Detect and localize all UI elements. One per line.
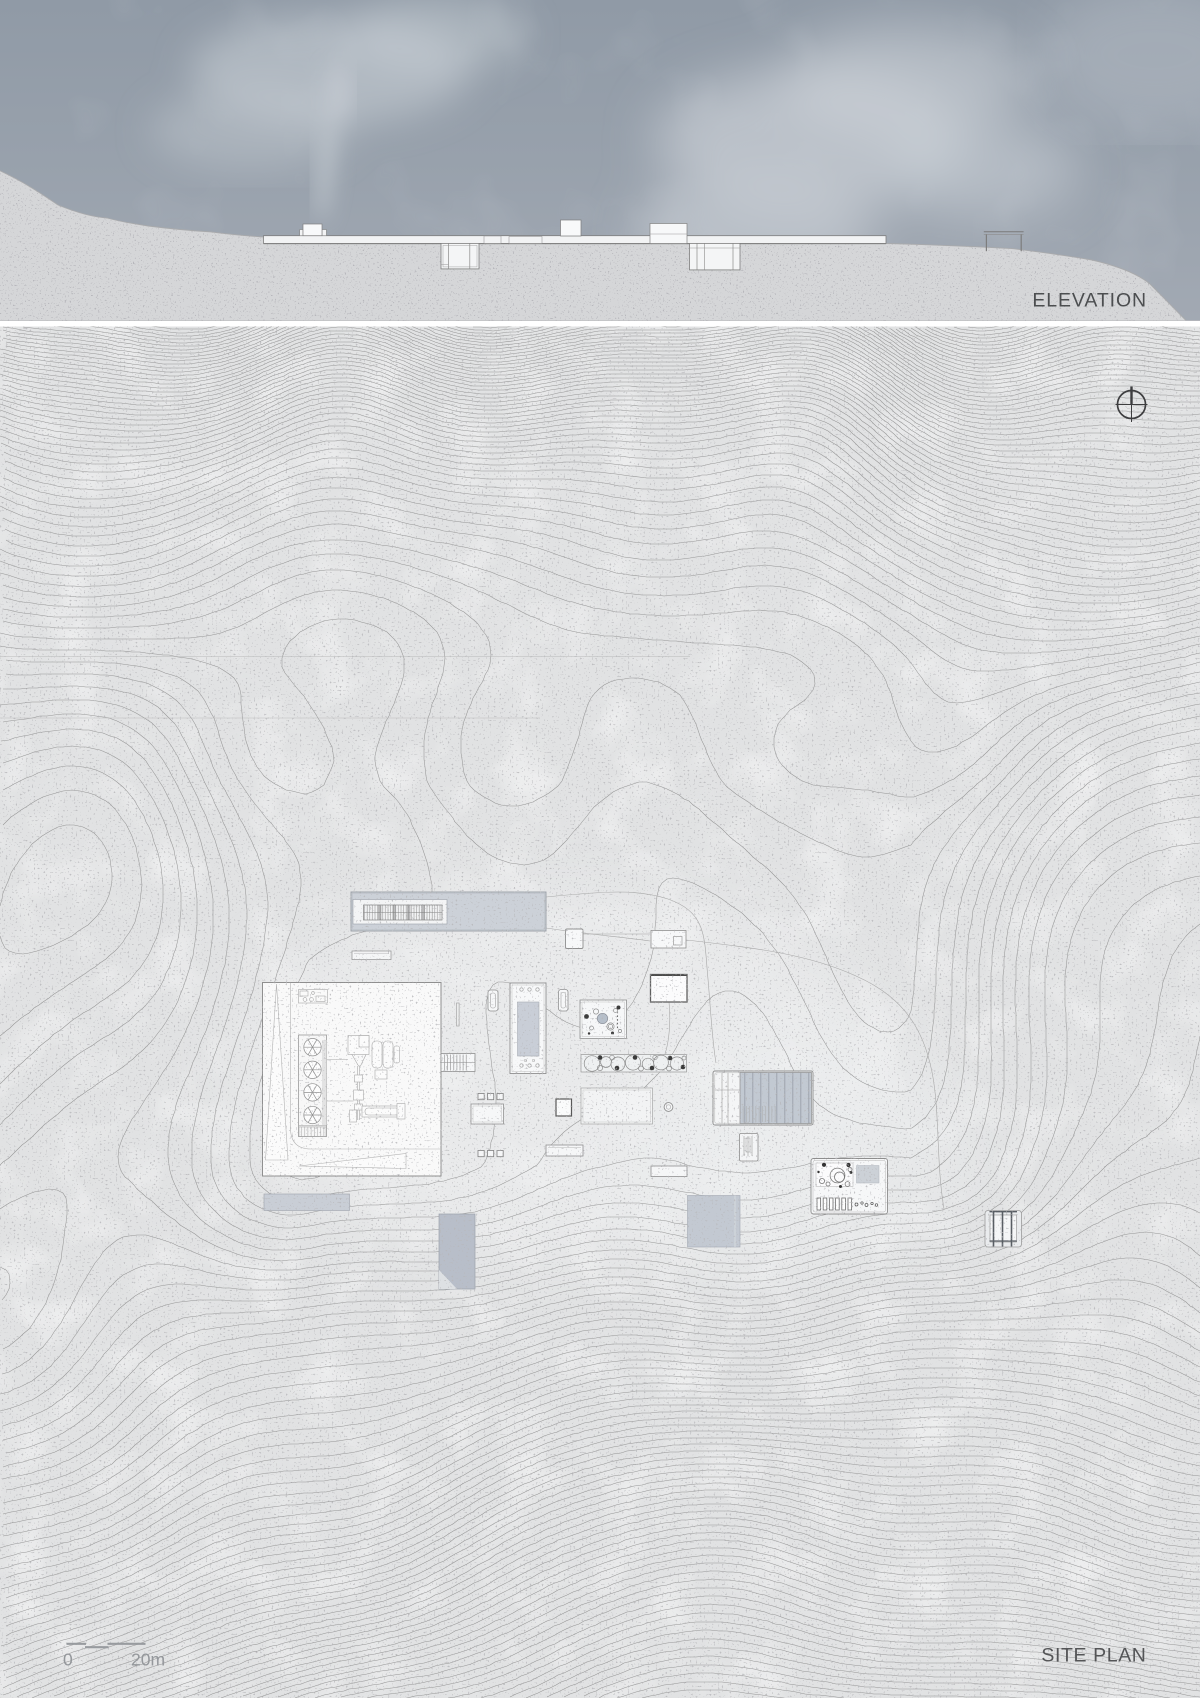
svg-text:20m: 20m (131, 1650, 165, 1670)
svg-text:ELEVATION: ELEVATION (1032, 290, 1147, 312)
svg-text:SITE PLAN: SITE PLAN (1041, 1645, 1146, 1667)
svg-text:0: 0 (63, 1650, 73, 1670)
